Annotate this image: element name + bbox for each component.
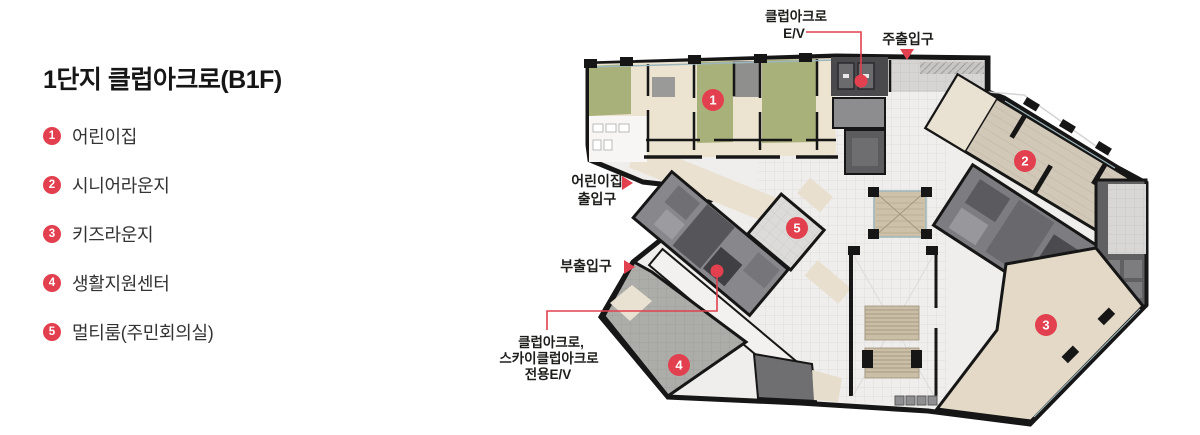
- label-sub-entrance: 부출입구: [560, 258, 612, 274]
- legend-item-2: 2 시니어라운지: [43, 172, 282, 198]
- legend-label-2: 시니어라운지: [72, 172, 170, 198]
- label-daycare-entrance-line2: 출입구: [578, 191, 617, 207]
- svg-text:5: 5: [793, 221, 800, 236]
- legend-badge-5: 5: [43, 323, 61, 341]
- legend-item-5: 5 멀티룸(주민회의실): [43, 319, 282, 345]
- plan-badge-2: 2: [1014, 150, 1036, 172]
- svg-text:1: 1: [709, 93, 716, 108]
- page-title: 1단지 클럽아크로(B1F): [43, 60, 282, 96]
- svg-text:2: 2: [1021, 154, 1028, 169]
- legend-badge-1: 1: [43, 127, 61, 145]
- legend-label-1: 어린이집: [72, 123, 137, 149]
- room-daycare-3: [762, 59, 816, 143]
- label-ev-bottom-line3: 전용E/V: [525, 366, 572, 382]
- label-ev-bottom-line1: 클럽아크로,: [518, 334, 584, 350]
- bathroom-zone: [589, 116, 647, 162]
- stairs-upper: [865, 306, 919, 340]
- legend-items: 1 어린이집 2 시니어라운지 3 키즈라운지 4 생활지원센터 5 멀티룸(주…: [43, 123, 282, 345]
- marker-ev-bottom-dot: [711, 265, 724, 278]
- room-daycare-1: [589, 64, 631, 116]
- page: 1단지 클럽아크로(B1F) 1 어린이집 2 시니어라운지 3 키즈라운지 4…: [0, 0, 1200, 435]
- svg-text:3: 3: [1042, 318, 1049, 333]
- label-daycare-entrance-line1: 어린이집: [571, 173, 623, 189]
- plan-badge-5: 5: [786, 217, 808, 239]
- label-ev-top-line2: E/V: [783, 26, 805, 41]
- legend-label-5: 멀티룸(주민회의실): [72, 319, 213, 345]
- legend-item-4: 4 생활지원센터: [43, 270, 282, 296]
- plan-badge-1: 1: [702, 89, 724, 111]
- legend-item-1: 1 어린이집: [43, 123, 282, 149]
- legend-label-4: 생활지원센터: [72, 270, 170, 296]
- plan-badge-4: 4: [668, 354, 690, 376]
- label-ev-bottom-line2: 스카이클럽아크로: [499, 350, 599, 366]
- legend-badge-2: 2: [43, 176, 61, 194]
- label-ev-top-line1: 클럽아크로: [765, 8, 828, 24]
- marker-ev-top-dot: [855, 75, 868, 88]
- plan-badge-3: 3: [1035, 314, 1057, 336]
- legend-badge-3: 3: [43, 225, 61, 243]
- legend-item-3: 3 키즈라운지: [43, 221, 282, 247]
- legend: 1단지 클럽아크로(B1F) 1 어린이집 2 시니어라운지 3 키즈라운지 4…: [43, 60, 282, 368]
- central-shaft: [868, 187, 932, 239]
- legend-label-3: 키즈라운지: [72, 221, 153, 247]
- legend-badge-4: 4: [43, 274, 61, 292]
- svg-text:4: 4: [675, 358, 683, 373]
- label-main-entrance: 주출입구: [882, 31, 934, 47]
